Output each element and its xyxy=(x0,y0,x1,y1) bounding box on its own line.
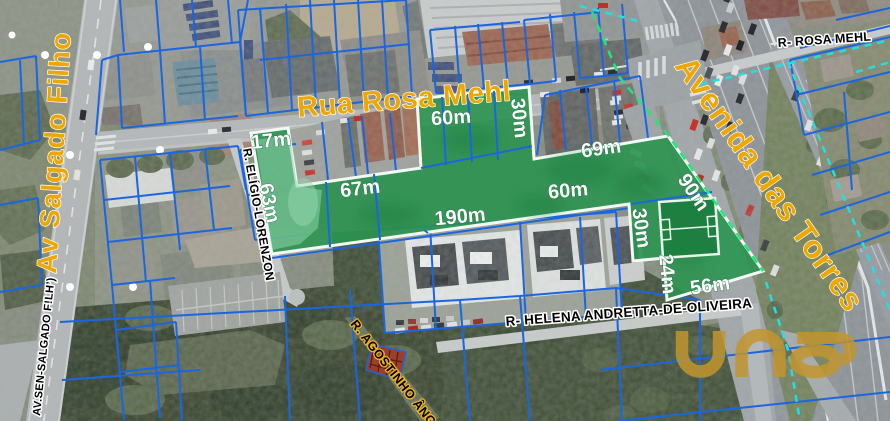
svg-text:24m: 24m xyxy=(654,253,680,295)
svg-text:60m: 60m xyxy=(547,178,589,203)
svg-text:17m: 17m xyxy=(250,128,292,154)
